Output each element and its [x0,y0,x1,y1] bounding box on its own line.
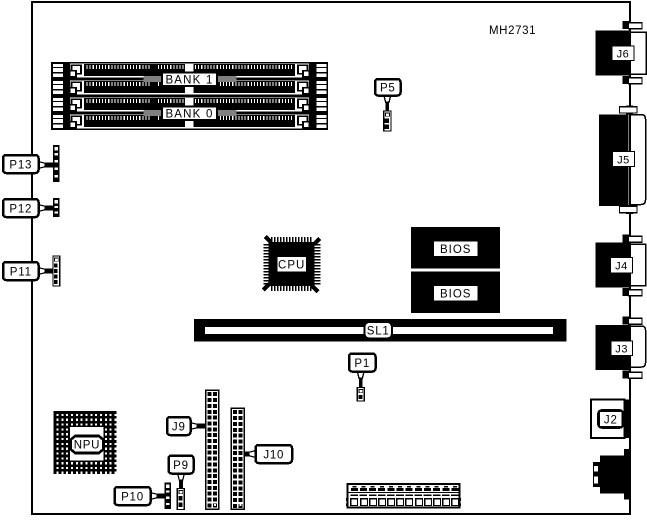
svg-text:P9: P9 [173,460,189,472]
svg-text:P11: P11 [10,266,32,278]
svg-text:J10: J10 [263,449,284,461]
svg-text:J6: J6 [617,49,630,61]
svg-text:P10: P10 [121,491,144,503]
svg-text:J5: J5 [617,154,630,166]
svg-text:NPU: NPU [74,439,100,451]
svg-text:BANK 1: BANK 1 [165,74,213,86]
svg-text:BIOS: BIOS [440,244,471,256]
svg-text:CPU: CPU [278,259,305,271]
svg-text:J4: J4 [615,261,628,273]
svg-text:BIOS: BIOS [440,289,471,301]
svg-text:J2: J2 [604,414,618,426]
svg-text:P1: P1 [354,358,370,370]
svg-text:P12: P12 [9,203,32,215]
svg-text:P5: P5 [380,83,396,95]
svg-text:J3: J3 [615,344,628,356]
svg-text:BANK 0: BANK 0 [165,108,213,120]
svg-text:J9: J9 [172,421,186,433]
svg-text:SL1: SL1 [367,326,390,338]
svg-text:MH2731: MH2731 [489,25,536,37]
svg-text:P13: P13 [9,159,32,171]
